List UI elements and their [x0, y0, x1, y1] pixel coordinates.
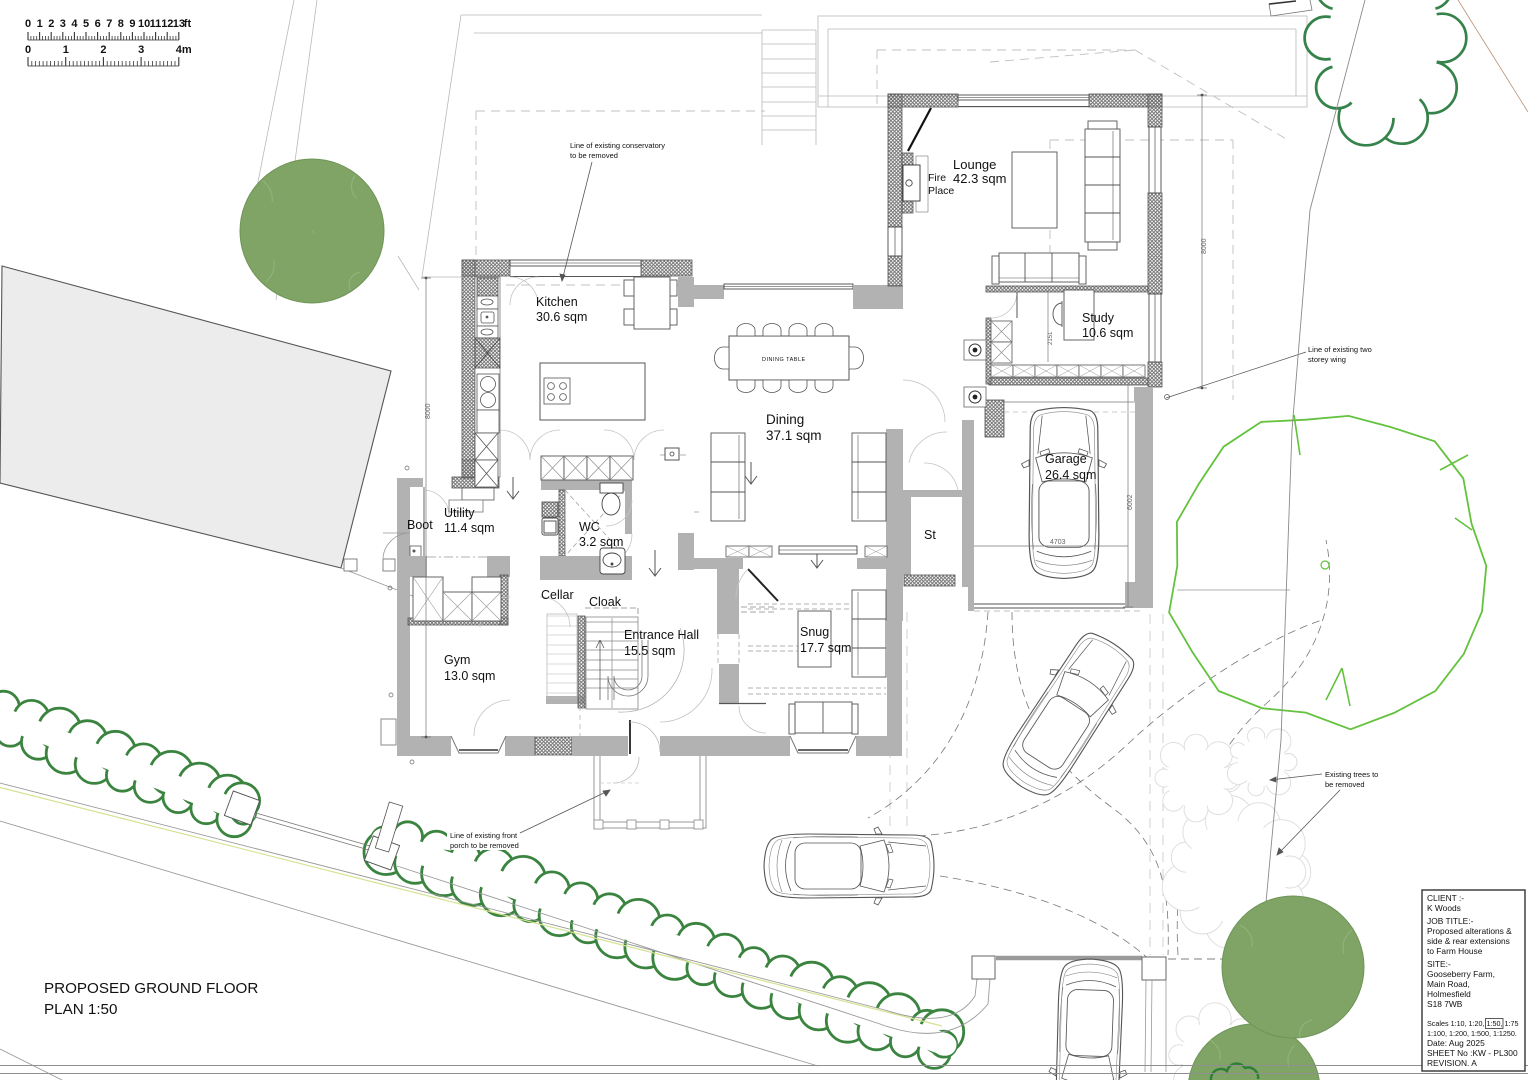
svg-text:be removed: be removed — [1325, 780, 1365, 789]
svg-text:3.2 sqm: 3.2 sqm — [579, 535, 623, 549]
svg-text:0: 0 — [25, 44, 31, 56]
svg-text:26.4 sqm: 26.4 sqm — [1045, 468, 1096, 482]
svg-text:3: 3 — [60, 18, 66, 30]
svg-text:Gym: Gym — [444, 653, 470, 667]
svg-text:storey wing: storey wing — [1308, 355, 1346, 364]
svg-text:8000: 8000 — [1201, 238, 1208, 254]
svg-text:Entrance Hall: Entrance Hall — [624, 628, 699, 642]
svg-text:REVISION. A: REVISION. A — [1427, 1058, 1477, 1068]
svg-text:2151: 2151 — [1048, 331, 1054, 345]
svg-text:6002: 6002 — [1127, 494, 1134, 510]
svg-text:0: 0 — [25, 18, 31, 30]
svg-text:2: 2 — [48, 18, 54, 30]
svg-text:PLAN 1:50: PLAN 1:50 — [44, 1001, 117, 1018]
svg-text:3: 3 — [138, 44, 144, 56]
svg-text:Gooseberry Farm,: Gooseberry Farm, — [1427, 969, 1495, 979]
svg-text:13.0 sqm: 13.0 sqm — [444, 669, 495, 683]
svg-text:PROPOSED GROUND FLOOR: PROPOSED GROUND FLOOR — [44, 980, 258, 997]
svg-text:Line of existing front: Line of existing front — [450, 831, 518, 840]
svg-text:11: 11 — [150, 18, 162, 30]
svg-text:Scales 1:10, 1:20, 1:50, 1:75: Scales 1:10, 1:20, 1:50, 1:75 — [1427, 1019, 1519, 1028]
svg-text:to be removed: to be removed — [570, 151, 618, 160]
svg-text:2: 2 — [100, 44, 106, 56]
svg-text:Date: Aug 2025: Date: Aug 2025 — [1427, 1038, 1485, 1048]
svg-text:SITE:-: SITE:- — [1427, 959, 1451, 969]
svg-text:K Woods: K Woods — [1427, 903, 1461, 913]
svg-text:CLIENT :-: CLIENT :- — [1427, 893, 1464, 903]
svg-text:WC: WC — [579, 520, 600, 534]
svg-text:Cellar: Cellar — [541, 588, 574, 602]
svg-text:4: 4 — [71, 18, 78, 30]
svg-text:S18 7WB: S18 7WB — [1427, 999, 1463, 1009]
svg-text:Proposed alterations &: Proposed alterations & — [1427, 926, 1512, 936]
svg-text:Lounge: Lounge — [953, 157, 996, 172]
svg-text:DINING TABLE: DINING TABLE — [762, 357, 806, 363]
svg-text:1:100, 1:200, 1:500, 1:1250.: 1:100, 1:200, 1:500, 1:1250. — [1427, 1029, 1517, 1038]
svg-text:ft: ft — [184, 18, 192, 30]
svg-text:5: 5 — [83, 18, 89, 30]
svg-text:8: 8 — [118, 18, 124, 30]
svg-text:11.4 sqm: 11.4 sqm — [444, 521, 495, 535]
svg-text:4m: 4m — [176, 44, 192, 56]
svg-text:Line of existing two: Line of existing two — [1308, 345, 1372, 354]
svg-text:8000: 8000 — [425, 403, 432, 419]
svg-text:Garage: Garage — [1045, 452, 1087, 466]
svg-text:Boot: Boot — [407, 518, 433, 532]
svg-text:1: 1 — [37, 18, 43, 30]
svg-text:Holmesfield: Holmesfield — [1427, 989, 1471, 999]
svg-text:porch to be removed: porch to be removed — [450, 841, 519, 850]
svg-text:Cloak: Cloak — [589, 595, 622, 609]
svg-text:Dining: Dining — [766, 412, 804, 427]
svg-text:side & rear extensions: side & rear extensions — [1427, 936, 1510, 946]
svg-text:Utility: Utility — [444, 506, 475, 520]
svg-text:42.3 sqm: 42.3 sqm — [953, 171, 1006, 186]
svg-text:Existing trees to: Existing trees to — [1325, 770, 1378, 779]
svg-text:4703: 4703 — [1050, 539, 1066, 546]
svg-text:JOB TITLE:-: JOB TITLE:- — [1427, 916, 1474, 926]
svg-text:Snug: Snug — [800, 625, 829, 639]
svg-text:Place: Place — [928, 185, 954, 197]
svg-text:St: St — [924, 528, 936, 542]
svg-text:SHEET No :KW - PL300: SHEET No :KW - PL300 — [1427, 1048, 1518, 1058]
svg-text:9: 9 — [129, 18, 135, 30]
svg-text:Line of existing conservatory: Line of existing conservatory — [570, 141, 665, 150]
svg-text:17.7 sqm: 17.7 sqm — [800, 641, 851, 655]
svg-text:Fire: Fire — [928, 172, 946, 184]
svg-text:15.5 sqm: 15.5 sqm — [624, 644, 675, 658]
svg-text:1: 1 — [63, 44, 69, 56]
svg-text:10: 10 — [138, 18, 150, 30]
svg-text:7: 7 — [106, 18, 112, 30]
svg-text:Kitchen: Kitchen — [536, 295, 578, 309]
svg-text:Study: Study — [1082, 311, 1115, 325]
svg-text:30.6 sqm: 30.6 sqm — [536, 310, 587, 324]
svg-text:Main Road,: Main Road, — [1427, 979, 1470, 989]
svg-text:6: 6 — [95, 18, 101, 30]
svg-text:10.6 sqm: 10.6 sqm — [1082, 326, 1133, 340]
svg-text:to Farm House: to Farm House — [1427, 946, 1483, 956]
svg-text:37.1 sqm: 37.1 sqm — [766, 428, 822, 443]
svg-text:12: 12 — [161, 18, 173, 30]
